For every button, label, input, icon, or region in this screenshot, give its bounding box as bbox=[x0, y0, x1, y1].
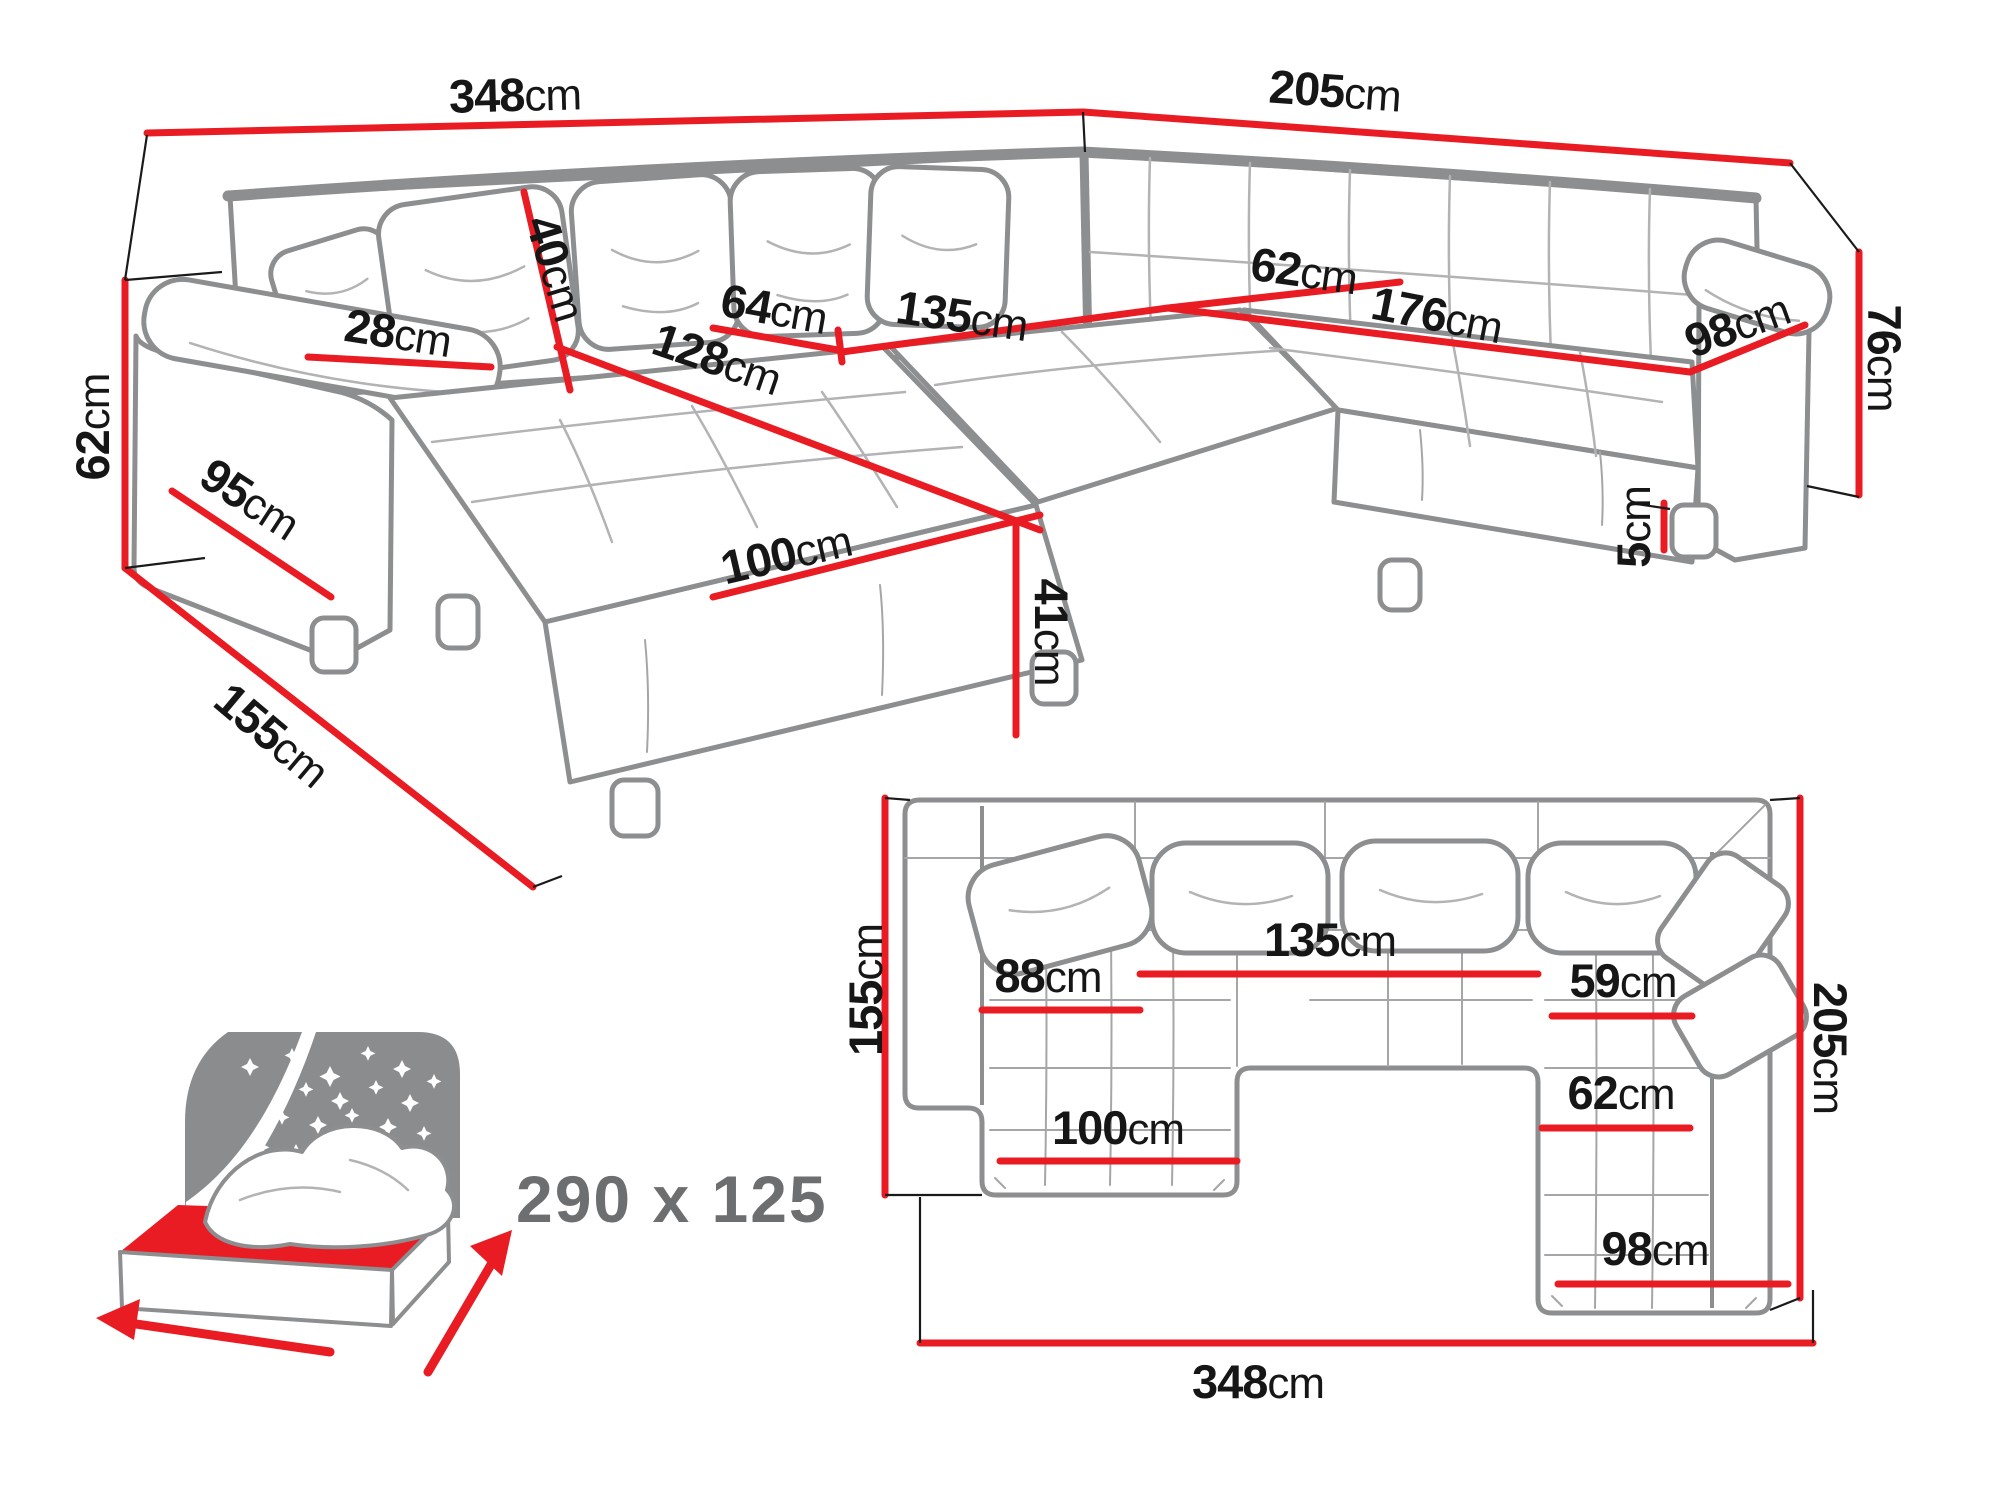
dim-total-width: 348cm bbox=[448, 66, 581, 122]
sofa-bed-mattress bbox=[120, 1126, 454, 1326]
dim-plan-depth-right: 205cm bbox=[1804, 982, 1857, 1114]
diagram-canvas: 348cm 205cm 62cm 76cm 155cm 95cm 28cm 40… bbox=[0, 0, 2000, 1500]
plan-view: 155cm 88cm 135cm 59cm 205cm 62cm 100cm 9… bbox=[839, 798, 1857, 1408]
dim-chaise-depth: 155cm bbox=[205, 672, 340, 797]
dim-left-height: 62cm bbox=[66, 374, 119, 481]
dim-leg-height: 5cm bbox=[1607, 486, 1660, 568]
dim-plan-right-seat-width: 59cm bbox=[1570, 954, 1677, 1007]
sleeping-area-icon: 290 x 125 bbox=[96, 1032, 828, 1372]
sofa-dimension-figure: 348cm 205cm 62cm 76cm 155cm 95cm 28cm 40… bbox=[0, 0, 2000, 1500]
dim-right-height: 76cm bbox=[1858, 305, 1911, 412]
dim-plan-right-seat-depth-mid: 62cm bbox=[1568, 1066, 1675, 1119]
perspective-view: 348cm 205cm 62cm 76cm 155cm 95cm 28cm 40… bbox=[66, 59, 1911, 887]
dim-plan-depth-left: 155cm bbox=[839, 924, 892, 1056]
dim-seat-height: 41cm bbox=[1025, 579, 1078, 686]
sleeping-dimensions-label: 290 x 125 bbox=[516, 1162, 828, 1236]
dim-plan-middle-seat-width: 135cm bbox=[1264, 913, 1396, 966]
dim-plan-chaise-seat-width: 88cm bbox=[995, 949, 1102, 1002]
dim-plan-chaise-width: 100cm bbox=[1052, 1101, 1184, 1154]
dim-plan-total-width: 348cm bbox=[1192, 1355, 1324, 1408]
dim-right-width: 205cm bbox=[1267, 59, 1402, 121]
dim-plan-right-seat-width-bottom: 98cm bbox=[1602, 1222, 1709, 1275]
